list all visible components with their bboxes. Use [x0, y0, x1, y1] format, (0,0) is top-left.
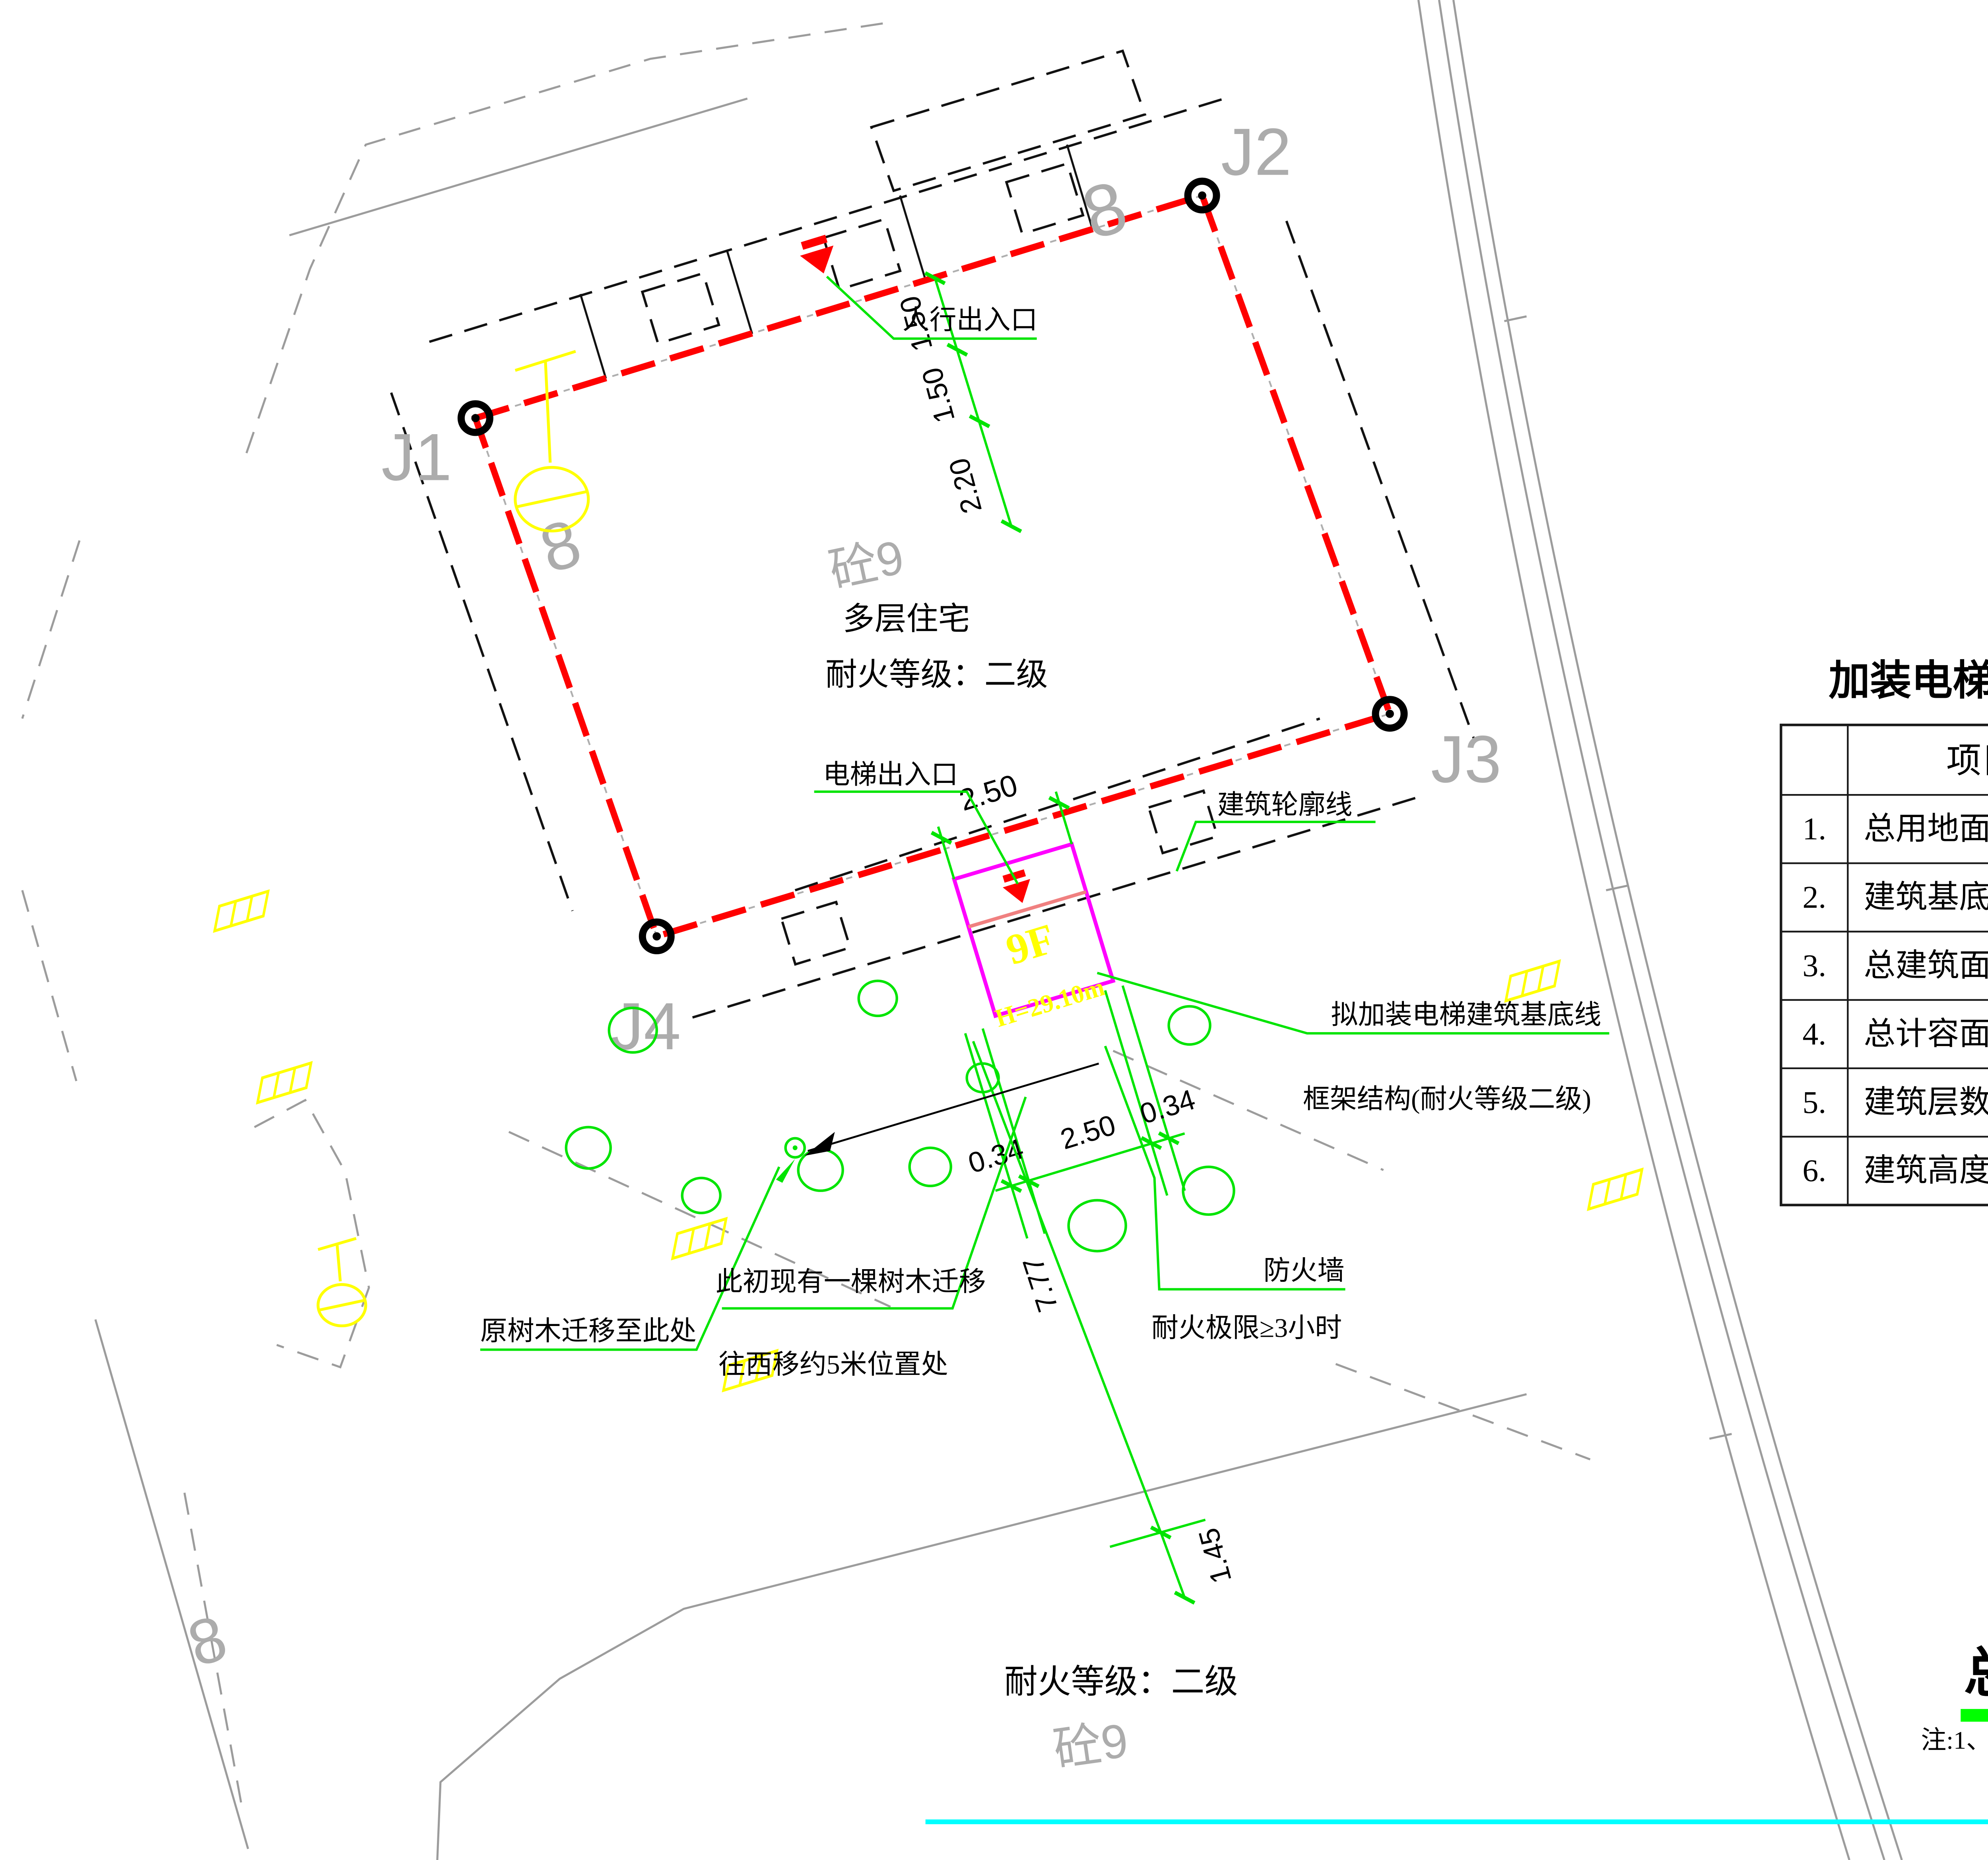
elevator-entrance-arrow-icon — [1000, 868, 1036, 907]
fire-rating-note-text: 耐火等级：二级 — [1004, 1664, 1238, 1701]
table-cell: 2. — [1802, 880, 1826, 915]
building-outline-label: 建筑轮廓线 — [1177, 790, 1376, 871]
table-cell: 4. — [1802, 1017, 1826, 1052]
street-lamp-icon — [318, 1239, 366, 1326]
dim-boundary-gap: 1.45 — [1193, 1525, 1238, 1587]
pedestrian-entrance-label: 人行出入口 — [827, 277, 1038, 339]
dim-offset-c: 2.20 — [943, 455, 988, 517]
fire-resistance-limit-text: 耐火极限≥3小时 — [1151, 1313, 1342, 1343]
table-cell: 总计容面积 — [1864, 1017, 1988, 1052]
residence-fire-rating-text: 耐火等级：二级 — [825, 657, 1048, 692]
site-boundary: J1 J2 J3 J4 — [381, 115, 1501, 1064]
tree-note-label: 此初现有一棵树木迁移 往西移约5米位置处 — [716, 1097, 1026, 1380]
title-underline — [1961, 1709, 1988, 1722]
road-lines — [1418, 0, 1988, 1860]
tree-note-line1-text: 此初现有一棵树木迁移 — [716, 1267, 986, 1297]
yellow-symbols — [215, 351, 1988, 1390]
tree-moved-here-label: 原树木迁移至此处 — [480, 1167, 779, 1350]
table-cell: 总建筑面积 — [1864, 948, 1988, 983]
parking-hatch-icons — [215, 891, 1642, 1390]
elevator-floors-label: 9F — [1001, 915, 1060, 974]
table-cell: 3. — [1802, 948, 1826, 983]
drawing-note: 注:1、本图尺寸以米为单位。 — [1921, 1726, 1988, 1754]
title-block: 总平面图 1:200 注:1、本图尺寸以米为单位。 — [1921, 1644, 1988, 1754]
dim-south-width: 2.50 — [1057, 1109, 1119, 1155]
corner-label-j2: J2 — [1221, 115, 1291, 189]
proposed-base-line-text: 拟加装电梯建筑基底线 — [1331, 1000, 1602, 1030]
table-cell: 建筑基底面积 — [1864, 880, 1988, 915]
site-plan-drawing: J1 J2 J3 J4 8 8 8 — [0, 0, 1988, 1860]
dim-offset-b: 1.50 — [916, 364, 961, 426]
dimensions: 1.50 1.50 2.20 2.50 0.34 2.50 0.34 — [894, 271, 1238, 1604]
residence-label: 多层住宅 耐火等级：二级 — [825, 602, 1048, 692]
indicator-table: 加装电梯主要技术经济指标表 项目 单位 数值 1. 总用地面积 m² 5.50 … — [1781, 658, 1988, 1205]
table-cell: 建筑高度 — [1864, 1153, 1988, 1188]
drawing-title: 总平面图 — [1964, 1644, 1988, 1703]
table-cell: 建筑层数 — [1864, 1085, 1988, 1120]
dim-south-right: 0.34 — [1136, 1083, 1199, 1130]
frame-structure-text: 框架结构(耐火等级二级) — [1303, 1084, 1591, 1114]
proposed-elevator: 9F H=29.10m — [954, 844, 1113, 1033]
tree-relocation-path — [776, 1064, 1099, 1183]
corner-label-j4: J4 — [610, 989, 681, 1064]
street-lamp-icon — [515, 351, 588, 531]
corner-label-j3: J3 — [1431, 722, 1501, 796]
elevator-height-label: H=29.10m — [992, 973, 1108, 1033]
table-cell: 总用地面积 — [1864, 812, 1988, 847]
corner-label-j1: J1 — [381, 420, 452, 495]
building-outline-text: 建筑轮廓线 — [1217, 790, 1353, 820]
table-header-item: 项目 — [1946, 742, 1988, 781]
concrete-mark-bottom: 砼9 — [1050, 1714, 1132, 1777]
table-cell: 1. — [1802, 812, 1826, 847]
tree-note-line2-text: 往西移约5米位置处 — [718, 1349, 948, 1380]
table-cell: 6. — [1802, 1153, 1826, 1188]
indicator-table-title: 加装电梯主要技术经济指标表 — [1829, 658, 1988, 704]
leader-arrowhead — [776, 1159, 795, 1183]
firewall-text: 防火墙 — [1264, 1256, 1345, 1286]
table-cell: 5. — [1802, 1085, 1826, 1120]
context-gray-lines — [22, 22, 1590, 1860]
pedestrian-entrance-text: 人行出入口 — [903, 305, 1038, 335]
elevator-entrance-text: 电梯出入口 — [823, 759, 958, 790]
residence-name-text: 多层住宅 — [843, 602, 970, 637]
concrete-mark-top: 砼9 — [825, 530, 908, 598]
tree-moved-here-text: 原树木迁移至此处 — [480, 1316, 697, 1346]
